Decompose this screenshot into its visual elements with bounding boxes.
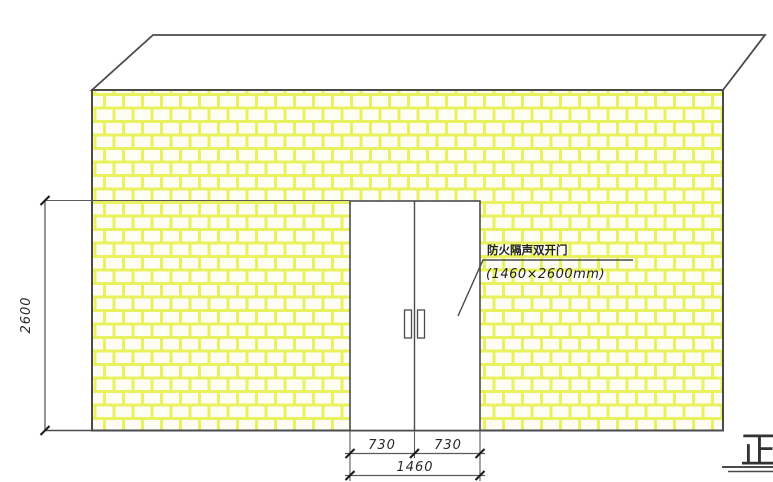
door-annotation-line1: 防火隔声双开门 — [487, 243, 568, 257]
height-dimension-label: 2600 — [19, 296, 34, 333]
title-character: 正 — [740, 429, 773, 472]
leaf-width-label-left: 730 — [368, 438, 396, 453]
total-width-label: 1460 — [396, 460, 433, 475]
elevation-drawing-canvas: 2600 730 730 1460 防火隔声双开门 (1460×2600mm) … — [0, 0, 773, 482]
wall-top-face — [92, 35, 765, 90]
leaf-width-label-right: 730 — [434, 438, 462, 453]
door-annotation-line2: (1460×2600mm) — [486, 267, 605, 282]
door-handle-right — [418, 310, 425, 338]
elevation-drawing: 2600 730 730 1460 防火隔声双开门 (1460×2600mm) … — [0, 0, 773, 482]
door-handle-left — [405, 310, 412, 338]
